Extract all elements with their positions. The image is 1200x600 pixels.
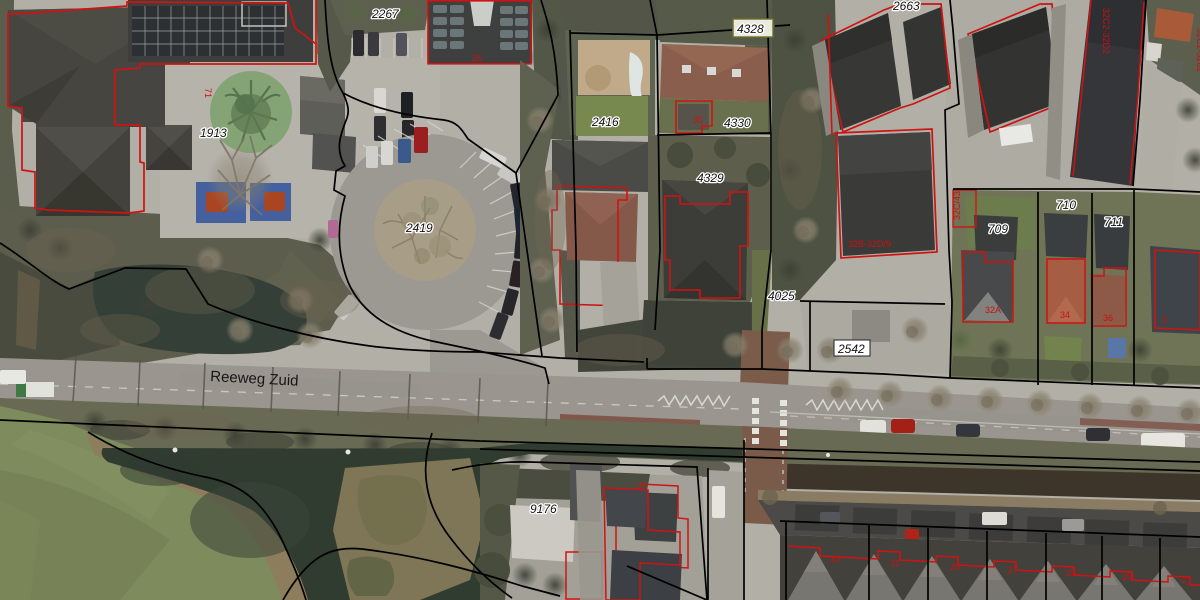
svg-text:1913: 1913 bbox=[200, 126, 227, 140]
svg-text:2416: 2416 bbox=[591, 115, 619, 129]
svg-text:2542: 2542 bbox=[837, 342, 865, 356]
svg-text:4328: 4328 bbox=[737, 22, 764, 36]
svg-text:25: 25 bbox=[1066, 568, 1076, 578]
svg-text:27: 27 bbox=[1008, 565, 1018, 575]
svg-text:2663: 2663 bbox=[892, 0, 920, 13]
svg-text:2419: 2419 bbox=[405, 221, 433, 235]
svg-text:71: 71 bbox=[203, 88, 213, 98]
svg-text:4025: 4025 bbox=[768, 289, 795, 303]
svg-text:31: 31 bbox=[890, 558, 900, 568]
svg-text:32A: 32A bbox=[985, 305, 1001, 315]
svg-text:32C/43: 32C/43 bbox=[952, 191, 962, 220]
svg-text:33: 33 bbox=[830, 554, 840, 564]
svg-text:711: 711 bbox=[1104, 215, 1123, 229]
svg-text:32C2-32D2: 32C2-32D2 bbox=[1101, 8, 1111, 54]
svg-text:4329: 4329 bbox=[697, 171, 724, 185]
svg-text:710: 710 bbox=[1056, 198, 1076, 212]
svg-text:36: 36 bbox=[1103, 313, 1113, 323]
svg-text:29: 29 bbox=[950, 562, 960, 572]
svg-text:709: 709 bbox=[988, 222, 1008, 236]
svg-text:2267: 2267 bbox=[371, 7, 400, 21]
svg-text:26: 26 bbox=[472, 53, 482, 63]
svg-text:30: 30 bbox=[693, 115, 703, 125]
svg-text:32B-32D/9: 32B-32D/9 bbox=[848, 239, 891, 249]
svg-text:21: 21 bbox=[1182, 575, 1192, 585]
svg-text:9176: 9176 bbox=[530, 502, 557, 516]
svg-text:4330: 4330 bbox=[724, 116, 751, 130]
svg-text:34: 34 bbox=[1060, 310, 1070, 320]
svg-text:32C2-3202: 32C2-3202 bbox=[1195, 28, 1200, 73]
svg-text:3: 3 bbox=[1162, 315, 1167, 325]
svg-text:23: 23 bbox=[1122, 572, 1132, 582]
